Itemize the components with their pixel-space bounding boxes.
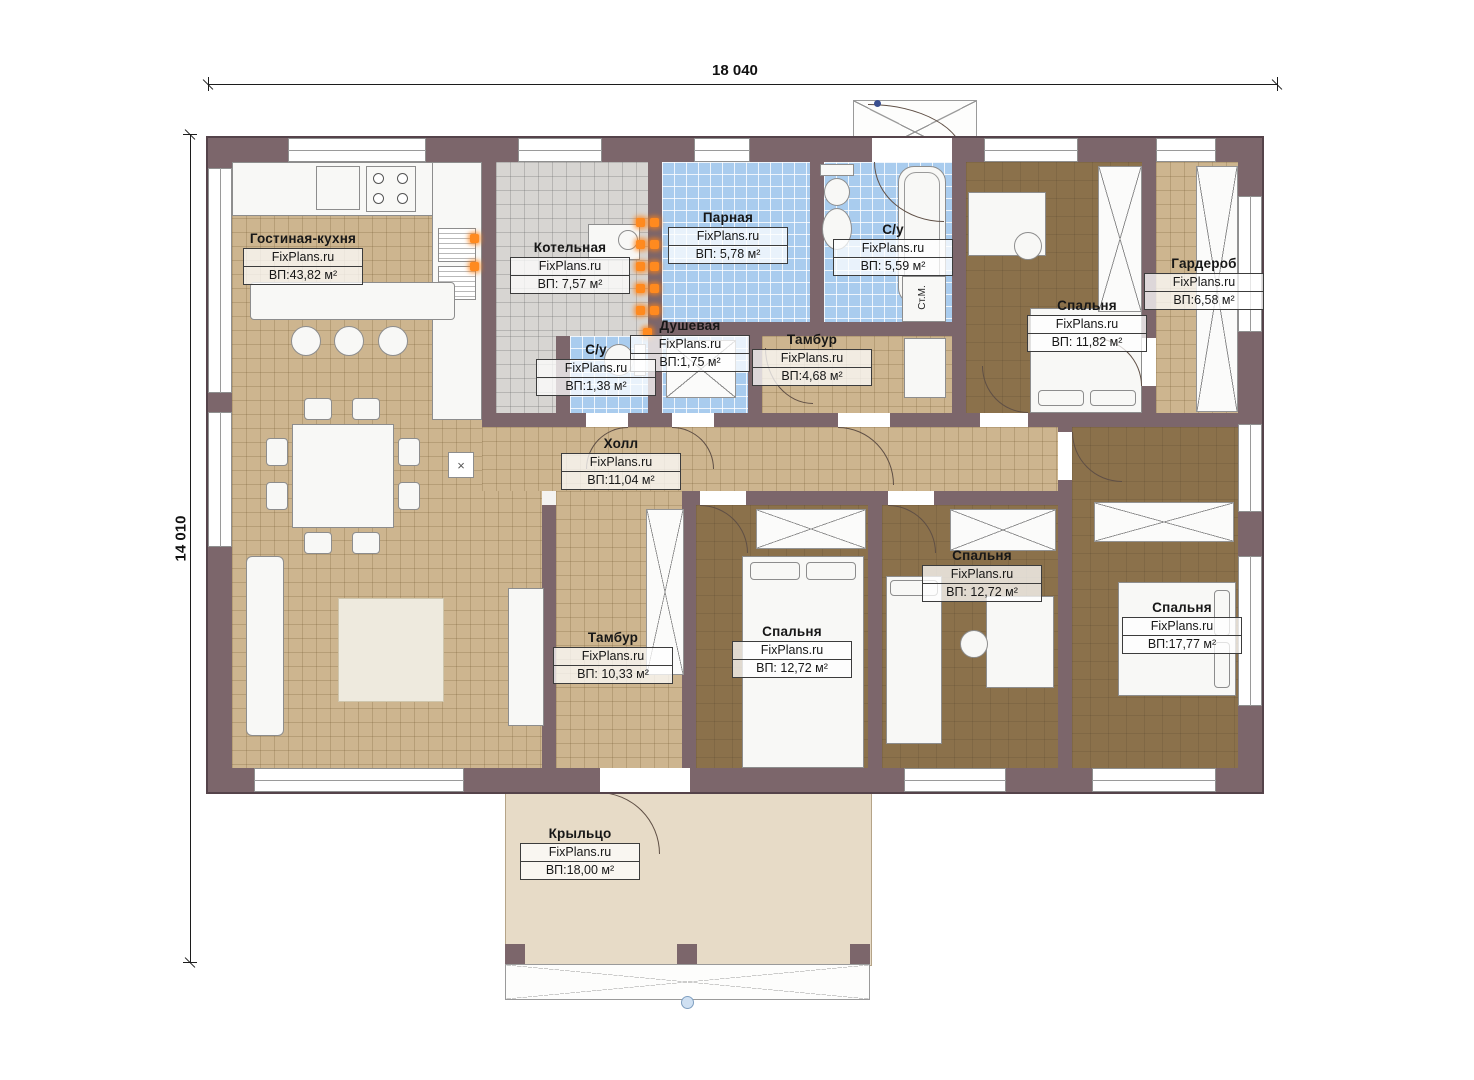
door-opening bbox=[672, 413, 714, 427]
room-name: Спальня bbox=[1112, 600, 1252, 615]
room-label-boiler: Котельная FixPlans.ru ВП: 7,57 м² bbox=[500, 240, 640, 294]
room-label-bedroom-s1: Спальня FixPlans.ru ВП: 12,72 м² bbox=[722, 624, 862, 678]
dining-chair bbox=[352, 532, 380, 554]
bed-pillow bbox=[1090, 390, 1136, 406]
label-area: ВП: 5,59 м² bbox=[833, 257, 953, 276]
room-name: С/у bbox=[526, 342, 666, 357]
window bbox=[694, 138, 750, 162]
wardrobe-cabinet bbox=[756, 509, 866, 549]
door-opening bbox=[872, 138, 952, 162]
label-brand: FixPlans.ru bbox=[732, 641, 852, 660]
label-brand: FixPlans.ru bbox=[243, 248, 363, 267]
dining-chair bbox=[304, 532, 332, 554]
stove-burner bbox=[373, 173, 384, 184]
label-area: ВП: 12,72 м² bbox=[732, 659, 852, 678]
label-brand: FixPlans.ru bbox=[561, 453, 681, 472]
room-name: Котельная bbox=[500, 240, 640, 255]
label-brand: FixPlans.ru bbox=[536, 359, 656, 378]
label-area: ВП: 11,82 м² bbox=[1027, 333, 1147, 352]
door-opening bbox=[1058, 432, 1072, 480]
window bbox=[1156, 138, 1216, 162]
wardrobe-cabinet bbox=[1094, 502, 1234, 542]
bar-stool bbox=[378, 326, 408, 356]
label-area: ВП:4,68 м² bbox=[752, 367, 872, 386]
wardrobe-cabinet bbox=[950, 509, 1056, 551]
window bbox=[208, 168, 232, 393]
room-label-tambour-bottom: Тамбур FixPlans.ru ВП: 10,33 м² bbox=[543, 630, 683, 684]
window bbox=[254, 768, 464, 792]
porch-column bbox=[677, 944, 697, 964]
bar-stool bbox=[334, 326, 364, 356]
heat-indicator bbox=[650, 306, 659, 315]
label-area: ВП: 5,78 м² bbox=[668, 245, 788, 264]
room-name: Гостиная-кухня bbox=[233, 231, 373, 246]
window bbox=[288, 138, 426, 162]
heat-indicator bbox=[636, 218, 645, 227]
room-name: Крыльцо bbox=[510, 826, 650, 841]
stove-burner bbox=[397, 193, 408, 204]
label-area: ВП: 10,33 м² bbox=[553, 665, 673, 684]
label-area: ВП:17,77 м² bbox=[1122, 635, 1242, 654]
desk-chair bbox=[960, 630, 988, 658]
sofa bbox=[246, 556, 284, 736]
wall bbox=[952, 162, 966, 413]
door-opening bbox=[980, 413, 1028, 427]
label-brand: FixPlans.ru bbox=[1027, 315, 1147, 334]
dimension-line-top bbox=[208, 84, 1277, 85]
dimension-height-label: 14 010 bbox=[172, 516, 189, 562]
room-label-bedroom-s2: Спальня FixPlans.ru ВП: 12,72 м² bbox=[912, 548, 1052, 602]
tv-console bbox=[508, 588, 544, 726]
dining-chair bbox=[304, 398, 332, 420]
door-opening bbox=[838, 413, 890, 427]
door-opening bbox=[586, 413, 628, 427]
wall bbox=[868, 505, 882, 768]
label-area: ВП:6,58 м² bbox=[1144, 291, 1264, 310]
living-rug bbox=[338, 598, 444, 702]
bed-pillow bbox=[750, 562, 800, 580]
kitchen-stove bbox=[366, 166, 416, 212]
label-brand: FixPlans.ru bbox=[520, 843, 640, 862]
room-name: Тамбур bbox=[543, 630, 683, 645]
label-area: ВП:11,04 м² bbox=[561, 471, 681, 490]
room-name: Спальня bbox=[722, 624, 862, 639]
dining-table bbox=[292, 424, 394, 528]
heat-indicator bbox=[470, 262, 479, 271]
room-name: Душевая bbox=[620, 318, 760, 333]
dining-chair bbox=[266, 438, 288, 466]
label-brand: FixPlans.ru bbox=[553, 647, 673, 666]
washing-machine-label: Ст.М. bbox=[917, 285, 928, 310]
label-brand: FixPlans.ru bbox=[510, 257, 630, 276]
heat-indicator bbox=[650, 284, 659, 293]
room-label-wardrobe: Гардероб FixPlans.ru ВП:6,58 м² bbox=[1134, 256, 1274, 310]
dining-chair bbox=[352, 398, 380, 420]
room-name: Парная bbox=[658, 210, 798, 225]
room-name: Тамбур bbox=[742, 332, 882, 347]
desk bbox=[986, 596, 1054, 688]
oven-stack bbox=[438, 228, 476, 262]
room-name: Гардероб bbox=[1134, 256, 1274, 271]
kitchen-island bbox=[250, 282, 455, 320]
label-brand: FixPlans.ru bbox=[922, 565, 1042, 584]
kitchen-sink bbox=[316, 166, 360, 210]
label-area: ВП: 12,72 м² bbox=[922, 583, 1042, 602]
label-brand: FixPlans.ru bbox=[752, 349, 872, 368]
door-opening bbox=[888, 491, 934, 505]
label-area: ВП:43,82 м² bbox=[243, 266, 363, 285]
window bbox=[208, 412, 232, 547]
window bbox=[1238, 424, 1262, 512]
room-label-bath-large: С/у FixPlans.ru ВП: 5,59 м² bbox=[823, 222, 963, 276]
tambour-bench bbox=[904, 338, 946, 398]
desk-chair bbox=[1014, 232, 1042, 260]
bed-pillow bbox=[1038, 390, 1084, 406]
dining-chair bbox=[398, 438, 420, 466]
label-brand: FixPlans.ru bbox=[668, 227, 788, 246]
toilet-tank bbox=[820, 164, 854, 176]
wall bbox=[682, 505, 696, 768]
porch-steps bbox=[505, 964, 870, 1000]
room-label-tambour-top: Тамбур FixPlans.ru ВП:4,68 м² bbox=[742, 332, 882, 386]
wall bbox=[810, 162, 824, 322]
room-name: С/у bbox=[823, 222, 963, 237]
room-label-steam: Парная FixPlans.ru ВП: 5,78 м² bbox=[658, 210, 798, 264]
wall bbox=[482, 162, 496, 413]
room-label-living: Гостиная-кухня FixPlans.ru ВП:43,82 м² bbox=[233, 231, 373, 285]
room-label-porch: Крыльцо FixPlans.ru ВП:18,00 м² bbox=[510, 826, 650, 880]
dining-chair bbox=[266, 482, 288, 510]
label-area: ВП:18,00 м² bbox=[520, 861, 640, 880]
stove-burner bbox=[397, 173, 408, 184]
door-opening bbox=[600, 768, 690, 792]
room-label-bedroom-se: Спальня FixPlans.ru ВП:17,77 м² bbox=[1112, 600, 1252, 654]
window bbox=[1092, 768, 1216, 792]
window bbox=[518, 138, 602, 162]
dimension-width-label: 18 040 bbox=[712, 62, 758, 79]
room-label-hall: Холл FixPlans.ru ВП:11,04 м² bbox=[551, 436, 691, 490]
label-brand: FixPlans.ru bbox=[1122, 617, 1242, 636]
bed-pillow bbox=[806, 562, 856, 580]
label-brand: FixPlans.ru bbox=[1144, 273, 1264, 292]
porch-column bbox=[505, 944, 525, 964]
heat-indicator bbox=[636, 306, 645, 315]
floor-plan-canvas: 18 040 14 010 bbox=[0, 0, 1474, 1080]
dimension-line-left bbox=[190, 134, 191, 962]
window bbox=[984, 138, 1078, 162]
dining-chair bbox=[398, 482, 420, 510]
porch-column bbox=[850, 944, 870, 964]
room-name: Спальня bbox=[912, 548, 1052, 563]
label-area: ВП:1,38 м² bbox=[536, 377, 656, 396]
heat-indicator bbox=[470, 234, 479, 243]
label-area: ВП: 7,57 м² bbox=[510, 275, 630, 294]
stove-burner bbox=[373, 193, 384, 204]
room-label-bath-small: С/у FixPlans.ru ВП:1,38 м² bbox=[526, 342, 666, 396]
porch-marker-dot bbox=[681, 996, 694, 1009]
window bbox=[904, 768, 1006, 792]
door-opening bbox=[700, 491, 746, 505]
toilet-bowl bbox=[824, 178, 850, 206]
bar-stool bbox=[291, 326, 321, 356]
door-marker: × bbox=[448, 452, 474, 478]
room-name: Холл bbox=[551, 436, 691, 451]
entry-marker-dot bbox=[874, 100, 881, 107]
label-brand: FixPlans.ru bbox=[833, 239, 953, 258]
